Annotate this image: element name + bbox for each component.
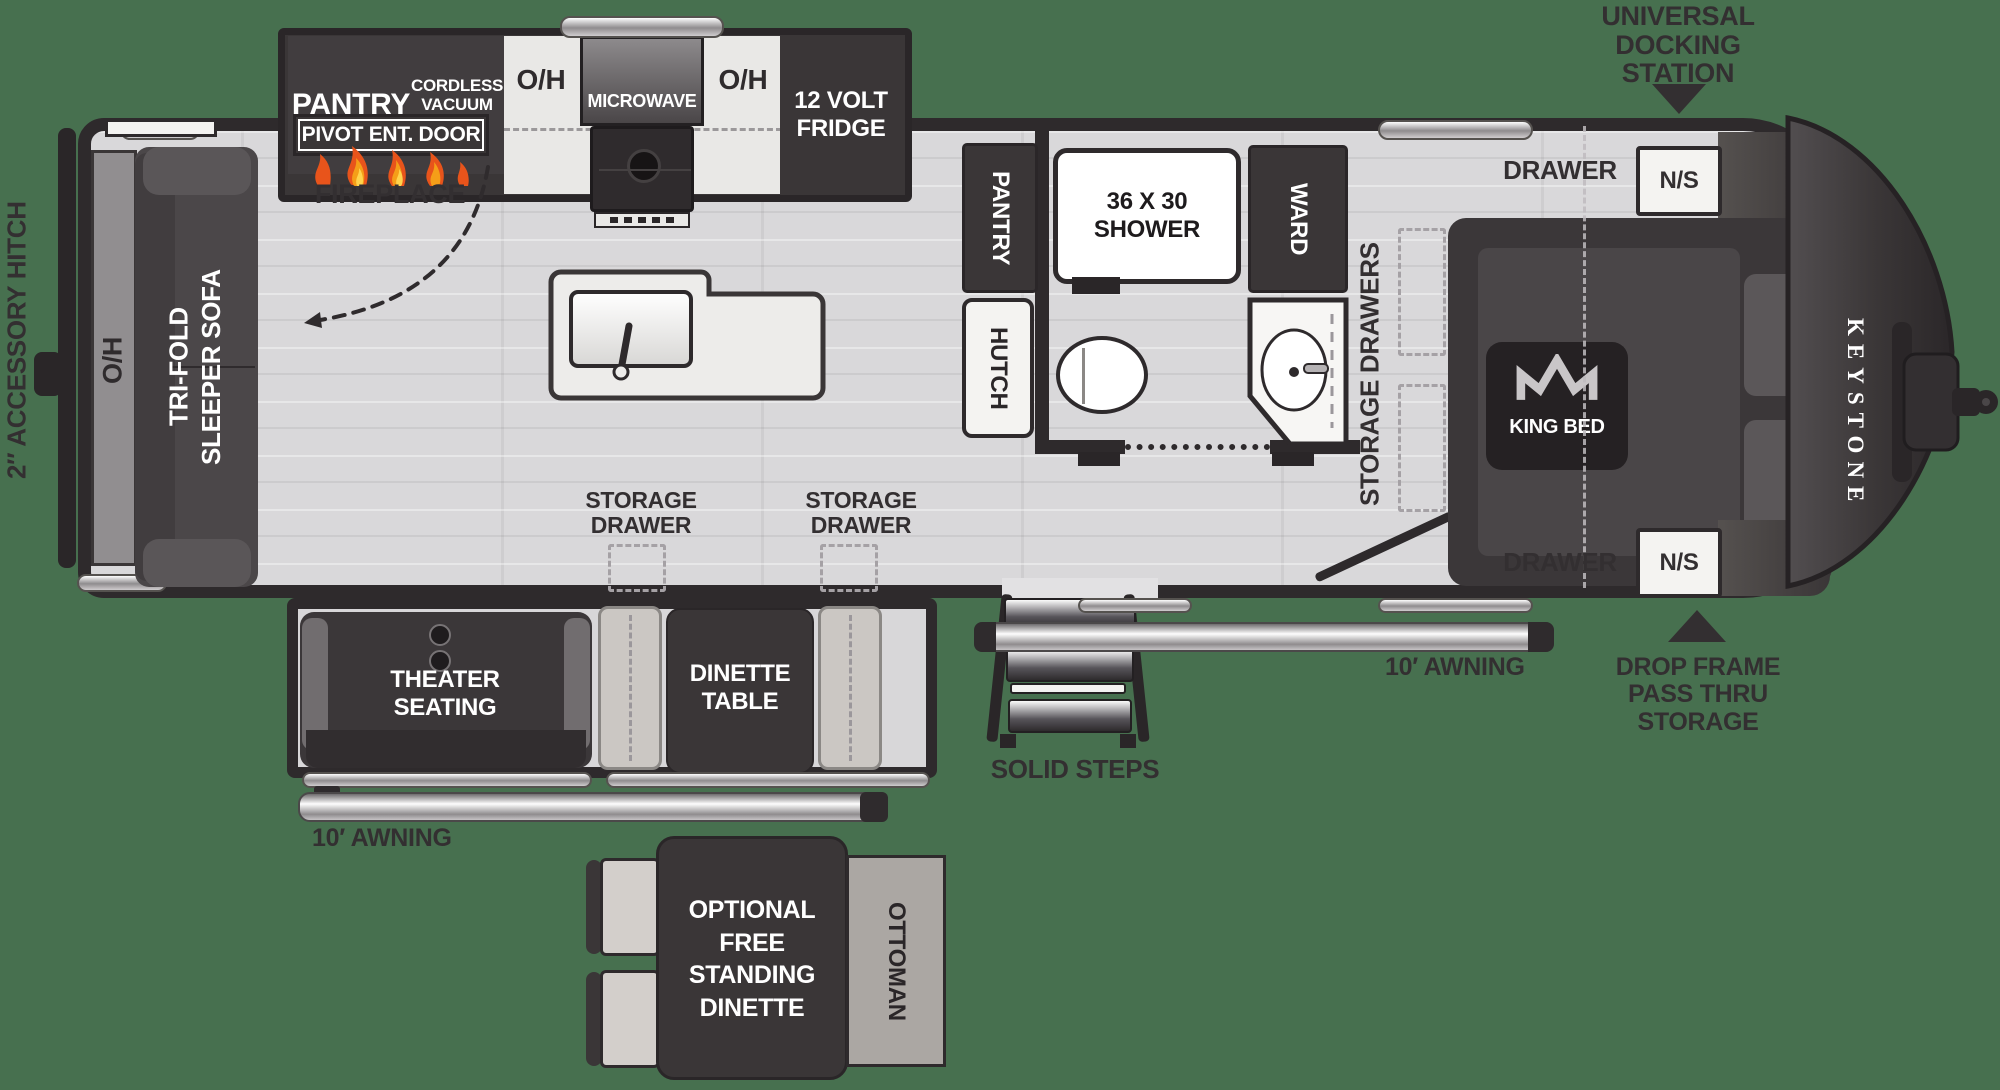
step-foot-right [1120, 734, 1136, 748]
docking-station-arrow-down-icon [1652, 84, 1706, 114]
microwave-label: MICROWAVE [578, 86, 706, 116]
bath-vanity [1246, 296, 1350, 448]
overhead-right-label: O/H [708, 52, 778, 108]
hitch-ball-highlight [1982, 398, 1990, 406]
awning-right-endcap-left [974, 622, 996, 652]
range-hood-vent [560, 16, 724, 38]
sleeper-sofa-label: TRI-FOLD SLEEPER SOFA [152, 262, 238, 472]
optional-dinette-chair-2 [586, 970, 660, 1068]
awning-right-label: 10′ AWNING [1385, 653, 1525, 682]
awning-left-endcap [860, 792, 888, 822]
bench-seam-dash [849, 615, 852, 761]
vanity-faucet [1304, 364, 1328, 373]
awning-right-endcap-right [1528, 622, 1554, 652]
bath-pantry-label: PANTRY [962, 143, 1038, 293]
slide-rail-right-a [1078, 598, 1192, 613]
storage-drawer-right-outline [820, 544, 878, 592]
drawer-bottom-label: DRAWER [1498, 546, 1622, 578]
storage-drawers-label: STORAGE DRAWERS [1350, 236, 1390, 512]
king-bed-label: KING BED [1486, 412, 1628, 442]
hutch-label: HUTCH [962, 298, 1034, 438]
drawer-top-label: DRAWER [1498, 154, 1622, 186]
brand-label: KEYSTONE [1840, 286, 1870, 542]
shower-label: 36 X 30 SHOWER [1053, 148, 1241, 284]
theater-seating-label: THEATER SEATING [335, 664, 555, 724]
sofa-arm-bottom [143, 539, 251, 587]
door-swing-arc [230, 150, 510, 340]
drop-frame-storage-label: DROP FRAME PASS THRU STORAGE [1598, 650, 1798, 740]
universal-docking-station-label: UNIVERSAL DOCKING STATION [1588, 4, 1768, 86]
shower-door-tab [1072, 277, 1120, 294]
theater-footrest [306, 730, 586, 768]
slide-rail-left-a [302, 772, 592, 788]
toilet-tank-seam [1082, 348, 1085, 404]
door-arc-path [320, 167, 488, 320]
solid-steps [986, 590, 1150, 752]
dinette-bench-left [598, 606, 662, 770]
door-arc-arrowhead [304, 312, 322, 328]
solid-steps-label: SOLID STEPS [980, 754, 1170, 784]
kitchen-island [545, 268, 835, 402]
bench-seam-dash [629, 615, 632, 761]
accessory-hitch-receiver [34, 352, 62, 396]
dinette-bench-right [818, 606, 882, 770]
chair-seat [600, 970, 660, 1068]
range-grate-line [599, 169, 691, 171]
step-tread-3 [1008, 699, 1132, 733]
nightstand-top: N/S [1636, 146, 1722, 216]
rear-window [105, 119, 217, 137]
drawer-knob [624, 217, 632, 223]
grab-bar-top-right [1378, 120, 1533, 140]
fridge-label: 12 VOLT FRIDGE [780, 36, 902, 194]
toilet [1056, 336, 1148, 414]
accessory-hitch-label: 2″ ACCESSORY HITCH [0, 160, 34, 520]
step-foot-left [1000, 734, 1016, 748]
dinette-table-label: DINETTE TABLE [666, 656, 814, 720]
awning-left-roller [298, 792, 888, 822]
step-gap-2 [1010, 683, 1126, 694]
cupholder-icon [429, 624, 451, 646]
storage-drawer-left-outline [608, 544, 666, 592]
drawer-knob [666, 217, 674, 223]
slide-rail-left-b [606, 772, 930, 788]
drop-frame-arrow-up-icon [1668, 610, 1726, 642]
vanity-tab [1272, 452, 1314, 466]
optional-dinette-label: OPTIONAL FREE STANDING DINETTE [656, 864, 848, 1054]
under-bed-storage-drawer-2 [1398, 384, 1446, 512]
overhead-rear-label: O/H [88, 328, 138, 392]
awning-right-roller [974, 622, 1554, 652]
ottoman-label: OTTOMAN [846, 855, 946, 1067]
hitch-coupler-body [1904, 354, 1958, 450]
step-tread-2 [1006, 648, 1134, 682]
floorplan-canvas: UNIVERSAL DOCKING STATION DROP FRAME PAS… [0, 0, 2000, 1090]
chair-seat [600, 858, 660, 956]
wardrobe-label: WARD [1248, 145, 1348, 293]
rear-bumper [58, 128, 76, 568]
crown-icon [1514, 354, 1600, 408]
nightstand-bottom: N/S [1636, 528, 1722, 598]
optional-dinette-chair-1 [586, 858, 660, 956]
awning-left-label: 10′ AWNING [312, 824, 452, 853]
slide-rail-right-b [1378, 598, 1533, 613]
overhead-left-label: O/H [506, 52, 576, 108]
burner-icon [627, 149, 661, 183]
range-drawer-panel [594, 212, 690, 228]
drawer-knob [638, 217, 646, 223]
cooktop-range [590, 126, 694, 212]
tongue-hitch [1886, 316, 2000, 492]
under-bed-storage-drawer-1 [1398, 228, 1446, 356]
bath-door-tab [1078, 452, 1120, 466]
storage-drawer-right-label: STORAGE DRAWER [795, 484, 927, 542]
drawer-knob [610, 217, 618, 223]
storage-drawer-left-label: STORAGE DRAWER [575, 484, 707, 542]
drawer-knob [652, 217, 660, 223]
bed-centerline-dash [1583, 126, 1586, 588]
sink-faucet-knob [614, 365, 628, 379]
vanity-drain [1289, 367, 1299, 377]
